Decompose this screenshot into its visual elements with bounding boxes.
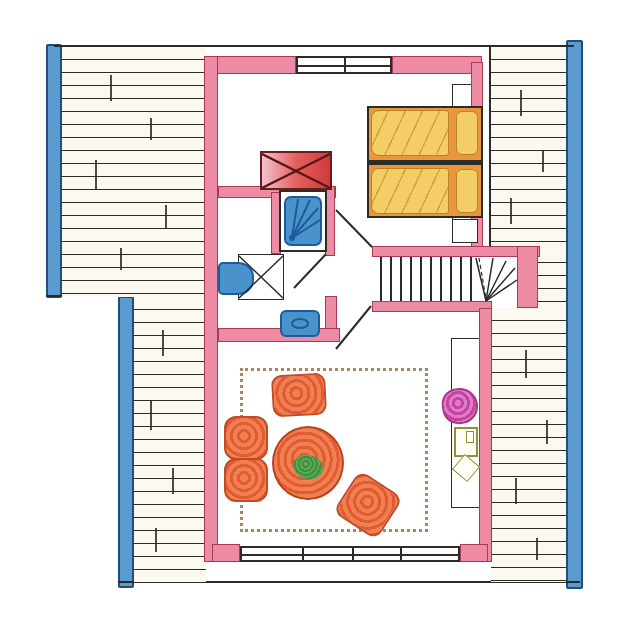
door-leaf-bathroom: [294, 254, 326, 288]
line-work-overlay: [0, 0, 640, 629]
floor-plan: [0, 0, 640, 629]
door-leaf-bedroom: [336, 210, 372, 247]
winder-tread-line: [476, 258, 486, 301]
door-leaf-living: [336, 306, 371, 349]
